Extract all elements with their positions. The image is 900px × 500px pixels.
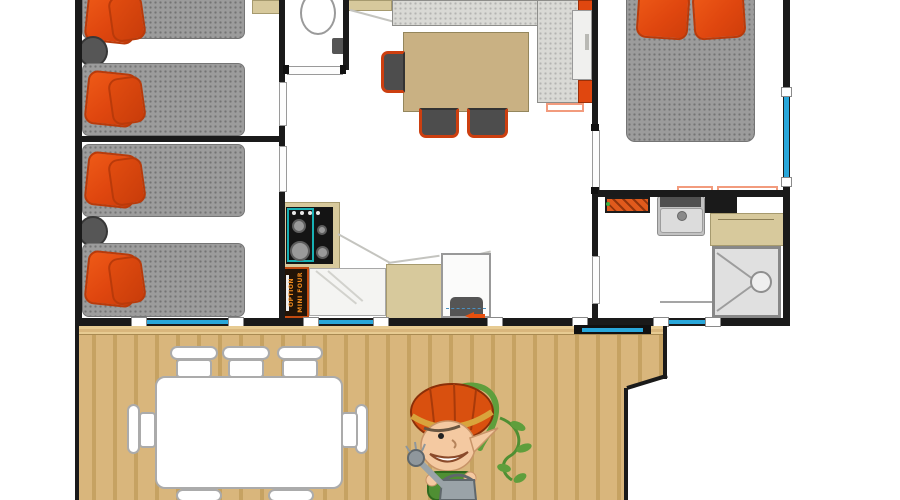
toilet <box>300 0 336 35</box>
deck-chair-seat <box>341 412 358 448</box>
sliding-door-glass <box>582 328 643 332</box>
radiator-valve <box>606 202 610 206</box>
deck-table <box>155 376 343 489</box>
shower-door-line <box>660 301 712 303</box>
pillow <box>107 255 147 306</box>
burner <box>290 241 310 261</box>
mascot-elf <box>400 378 550 500</box>
cabinet-open-line <box>350 9 394 23</box>
deck-chair-back <box>170 346 218 360</box>
door-hinge <box>591 124 599 131</box>
burner <box>316 246 329 259</box>
washbasin-backsplash <box>660 197 701 207</box>
double-bed <box>626 0 755 142</box>
cooktop-knob <box>308 211 312 215</box>
burner <box>317 225 327 235</box>
door-hinge <box>283 65 289 74</box>
dining-table <box>403 32 529 112</box>
bathroom-counter <box>710 213 785 246</box>
fridge-line <box>446 308 486 309</box>
washbasin-tap <box>677 211 687 221</box>
bathroom-top-wall <box>598 190 790 197</box>
shower <box>712 246 781 318</box>
bathroom-door <box>592 256 600 304</box>
option-label-line1: OPTION <box>288 278 295 307</box>
master-bedroom-door <box>592 130 600 190</box>
single-bed-2 <box>82 63 245 136</box>
single-bed-1 <box>82 0 245 39</box>
window-cap <box>705 317 721 327</box>
shower-tray-marks <box>715 249 778 315</box>
pillow <box>107 75 147 126</box>
fridge <box>441 253 491 318</box>
sofa-cushion-panel <box>572 10 592 80</box>
cooktop <box>286 207 333 264</box>
deck-chair-back <box>277 346 323 360</box>
deck-border-right-lower <box>624 388 628 500</box>
radiator-living <box>546 103 584 112</box>
dining-chair-left <box>381 51 405 93</box>
single-bed-3 <box>82 144 245 217</box>
pillow <box>107 0 147 43</box>
bedroom-divider-wall <box>82 136 285 142</box>
kitchen-counter-tan <box>386 264 443 320</box>
deck-chair-back <box>222 346 270 360</box>
window-cap <box>781 87 792 97</box>
window-bottom-2 <box>318 320 373 324</box>
deck-chair-back <box>268 489 314 500</box>
cabinet-open-line <box>338 233 391 264</box>
burner <box>292 219 306 233</box>
left-wall <box>75 0 82 326</box>
window-bottom-1 <box>147 320 228 324</box>
door-hinge <box>340 65 346 74</box>
cooktop-knob <box>300 211 304 215</box>
deck-chair-back <box>176 489 222 500</box>
wc-wall <box>343 0 349 70</box>
bathroom-column <box>705 195 737 213</box>
bathroom-counter-edge <box>718 219 774 220</box>
pillow <box>107 156 147 207</box>
bedroom2-door <box>279 146 287 192</box>
deck-chair-seat <box>139 412 156 448</box>
corner-sofa-top <box>392 0 539 26</box>
single-bed-4 <box>82 243 245 317</box>
dining-chair-bottom-1 <box>419 108 459 138</box>
cooktop-knob <box>316 211 320 215</box>
window-cap <box>781 177 792 187</box>
dining-chair-bottom-2 <box>467 108 508 138</box>
deck-border-left <box>75 326 79 500</box>
bedroom1-door <box>279 82 287 126</box>
mini-oven-option-box: OPTION MINI FOUR <box>283 267 309 318</box>
deck-border-right-upper <box>663 326 667 379</box>
cabinet-open-line <box>388 255 440 264</box>
floor-plan: OPTION MINI FOUR <box>0 0 900 500</box>
pillow <box>635 0 690 41</box>
radiator-bathroom <box>605 197 650 213</box>
window-bottom-3 <box>669 320 705 324</box>
window-right <box>784 95 789 178</box>
sofa-handle <box>585 34 589 50</box>
pillow <box>691 0 746 41</box>
option-label-line2: MINI FOUR <box>297 272 304 313</box>
wc-door <box>287 66 343 75</box>
cooktop-knob <box>292 211 296 215</box>
